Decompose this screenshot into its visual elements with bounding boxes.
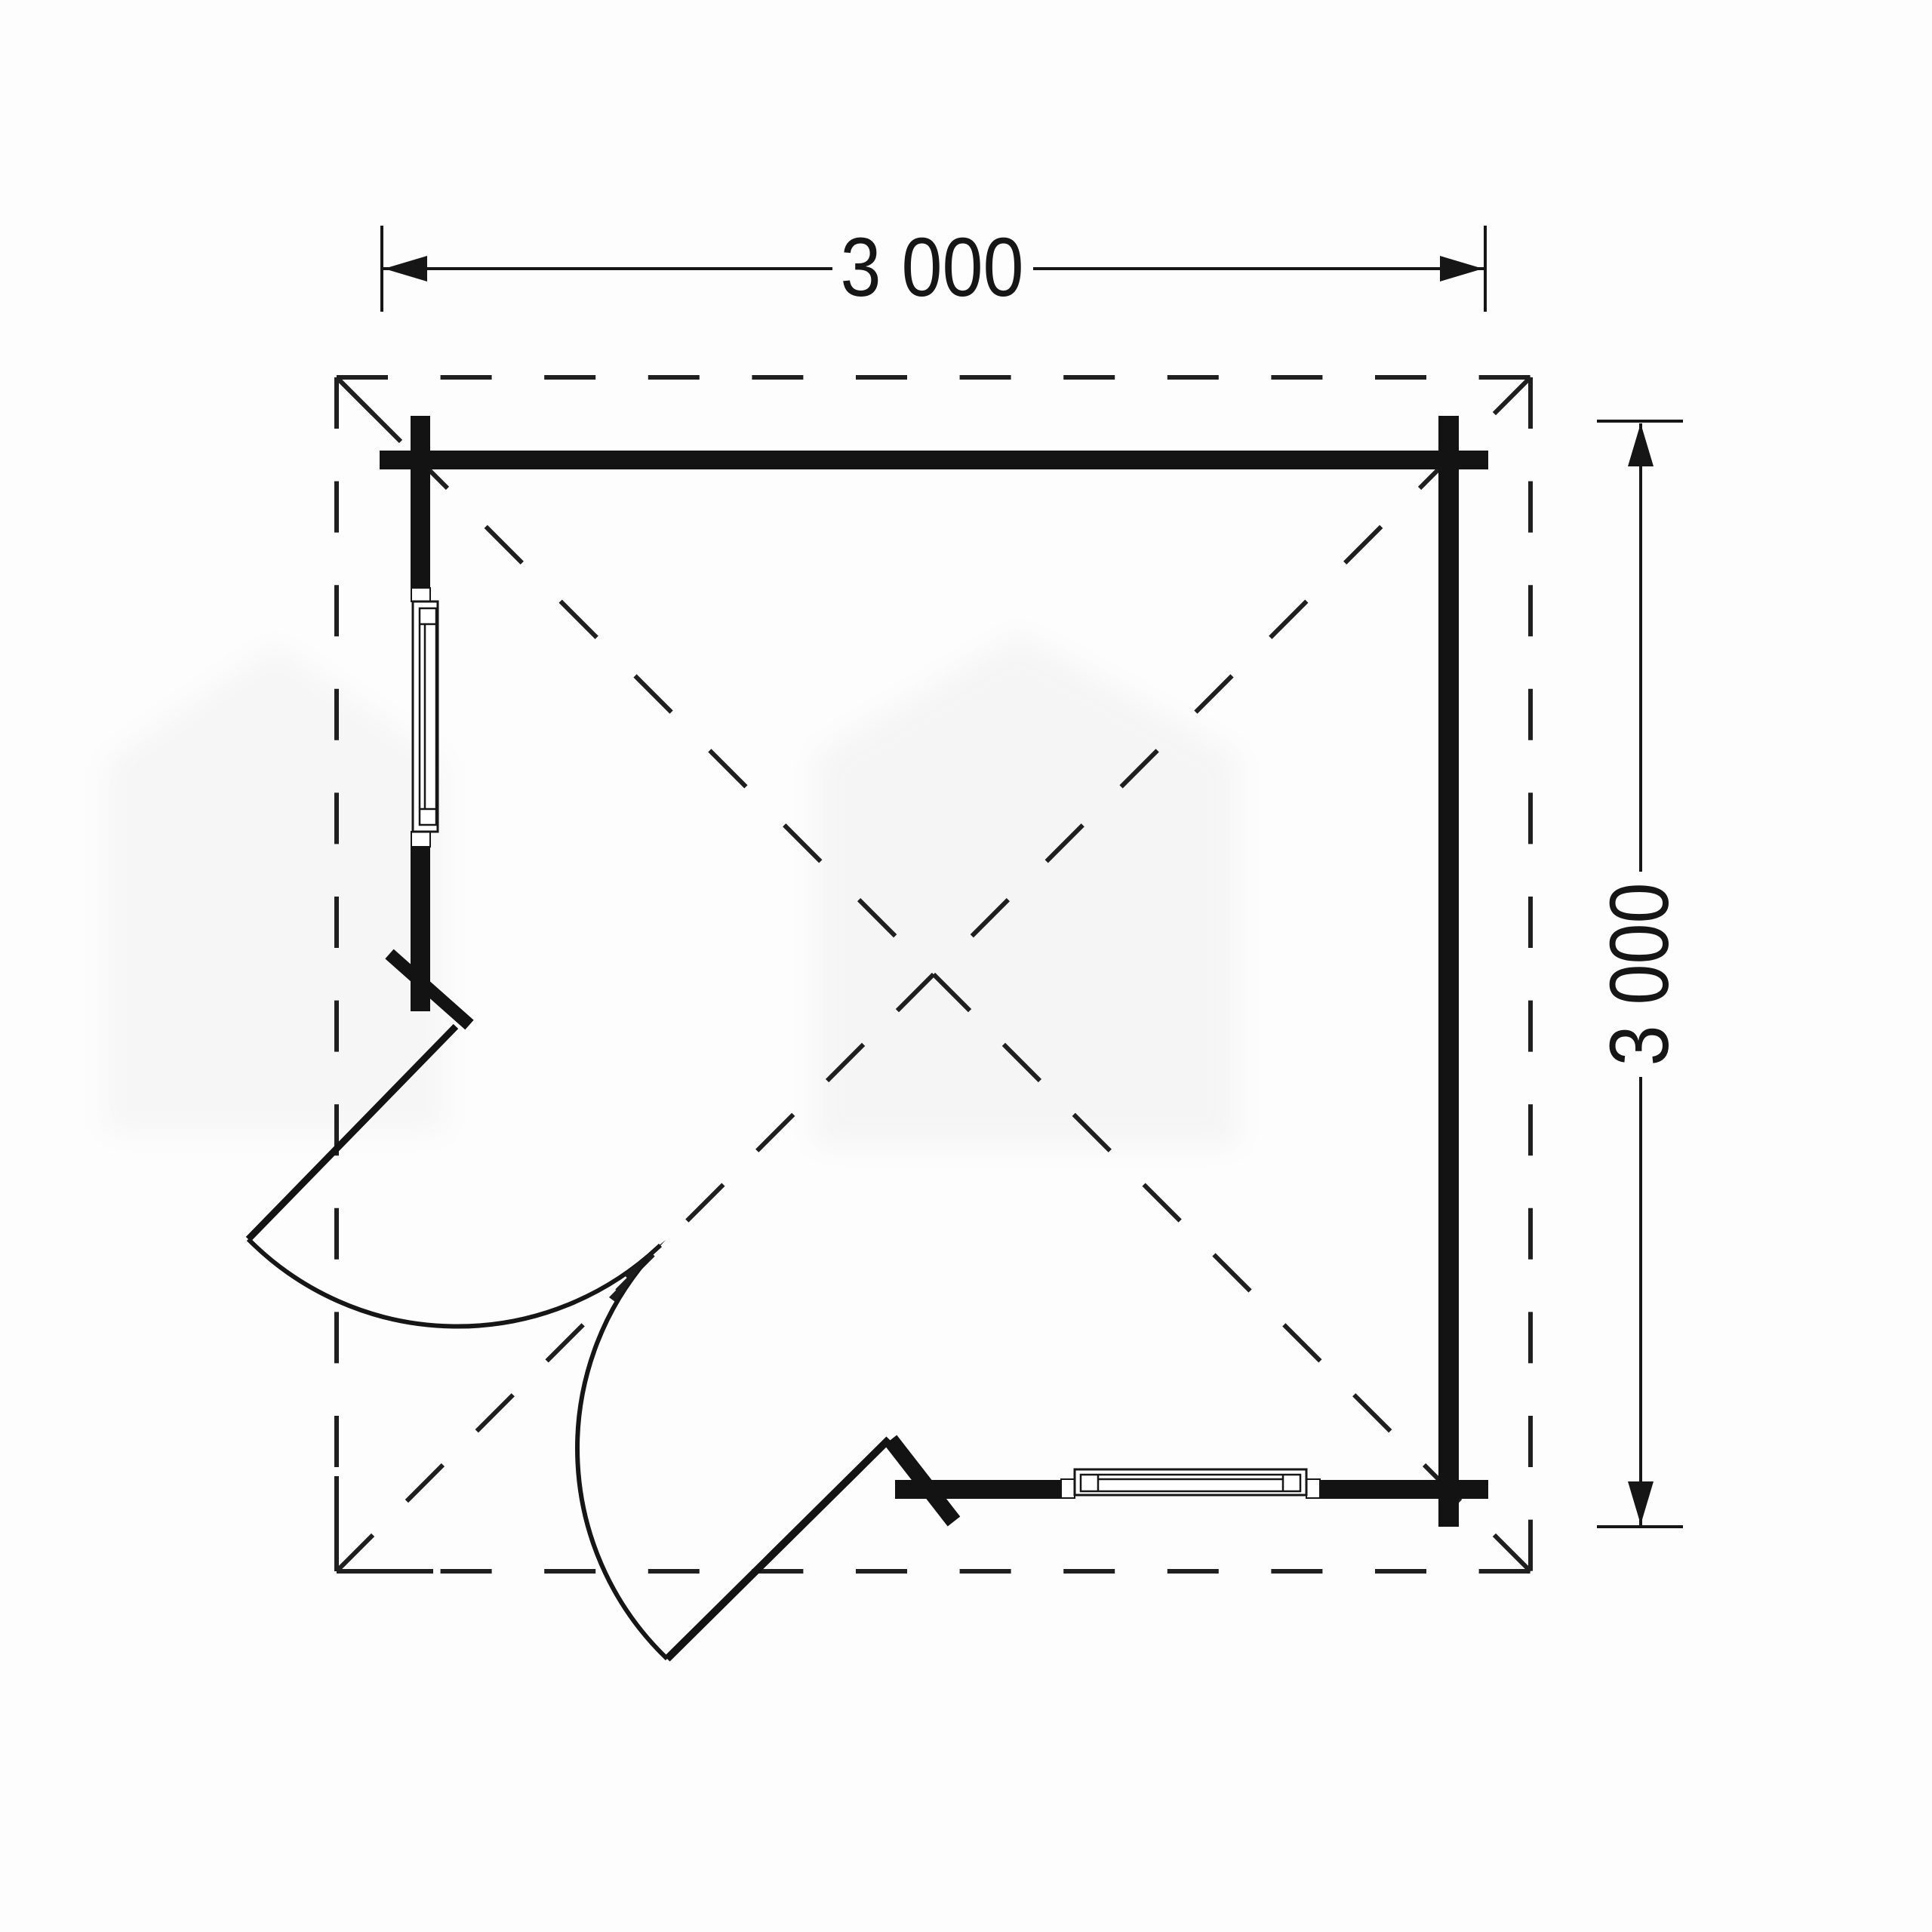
- svg-text:3 000: 3 000: [841, 221, 1024, 314]
- svg-text:3 000: 3 000: [1593, 883, 1686, 1066]
